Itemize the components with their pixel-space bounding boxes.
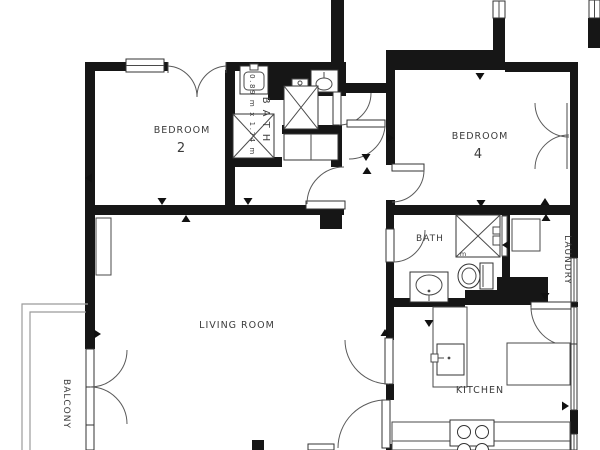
dimension-arrow [362,154,371,161]
floorplan-svg: BEDROOM 2 BEDROOM 4 BATH 0.89 m x 1.74 m… [0,0,600,450]
shower-icon-bath1-center [284,79,318,129]
living-room-label: LIVING ROOM [199,320,275,331]
bedroom2-number: 2 [177,141,185,156]
balcony-label: BALCONY [61,379,71,429]
bath1-label: BATH [260,97,271,148]
bath2-shower-mark: m [460,250,466,258]
threshold-fixture-bottom [308,444,334,450]
dimension-arrow [158,198,167,205]
window-top-stub [493,1,505,18]
door-kitchen-living [345,338,393,384]
window-kitchen-east-3 [571,434,577,450]
stove-icon [450,420,494,450]
dimension-arrow [542,214,551,221]
toilet-icon-bath2 [458,263,493,289]
sink-icon-bath2 [410,272,448,302]
french-door-balcony [86,349,127,425]
bedroom2-label: BEDROOM [154,125,211,136]
dimension-arrow [244,198,253,205]
bath2-label: BATH [416,234,444,244]
closet-cells-bath1 [284,134,338,160]
kitchen-island [507,343,570,385]
window-top-right-corner [589,0,600,18]
door-hall-nook [306,167,345,209]
kitchen-label: KITCHEN [456,385,504,396]
door-bedroom4 [392,164,424,202]
window-kitchen-east-2 [571,344,577,410]
window-bedroom2-top [126,59,164,72]
door-corridor-b [347,120,385,159]
bath1-dimensions: 0.89 m x 1.74 m [248,74,256,156]
cabinet-icon-living [96,218,111,275]
dimension-arrow [363,167,372,174]
bedroom4-label: BEDROOM [452,131,509,142]
french-door-bedroom2 [168,62,226,97]
floorplan-screenshot: BEDROOM 2 BEDROOM 4 BATH 0.89 m x 1.74 m… [0,0,600,450]
washer-icon-laundry [512,219,540,251]
window-balcony-lower [86,425,94,450]
dimension-arrow [541,198,550,205]
window-kitchen-east-1 [571,307,577,344]
laundry-label: LAUNDRY [562,235,572,285]
dimension-arrow [476,73,485,80]
dimension-arrow [182,215,191,222]
closet-doors-bedroom4 [535,103,569,169]
door-laundry-kitchen [531,302,571,346]
bedroom4-number: 4 [474,147,482,162]
balcony-railing [22,304,88,450]
dimension-arrow [425,320,434,327]
door-entry-bottom [338,400,390,448]
kitchen-counter-south [392,420,570,450]
dimension-arrow [94,330,101,339]
dimension-arrow [562,402,569,411]
kitchen-counter-west [431,307,467,387]
